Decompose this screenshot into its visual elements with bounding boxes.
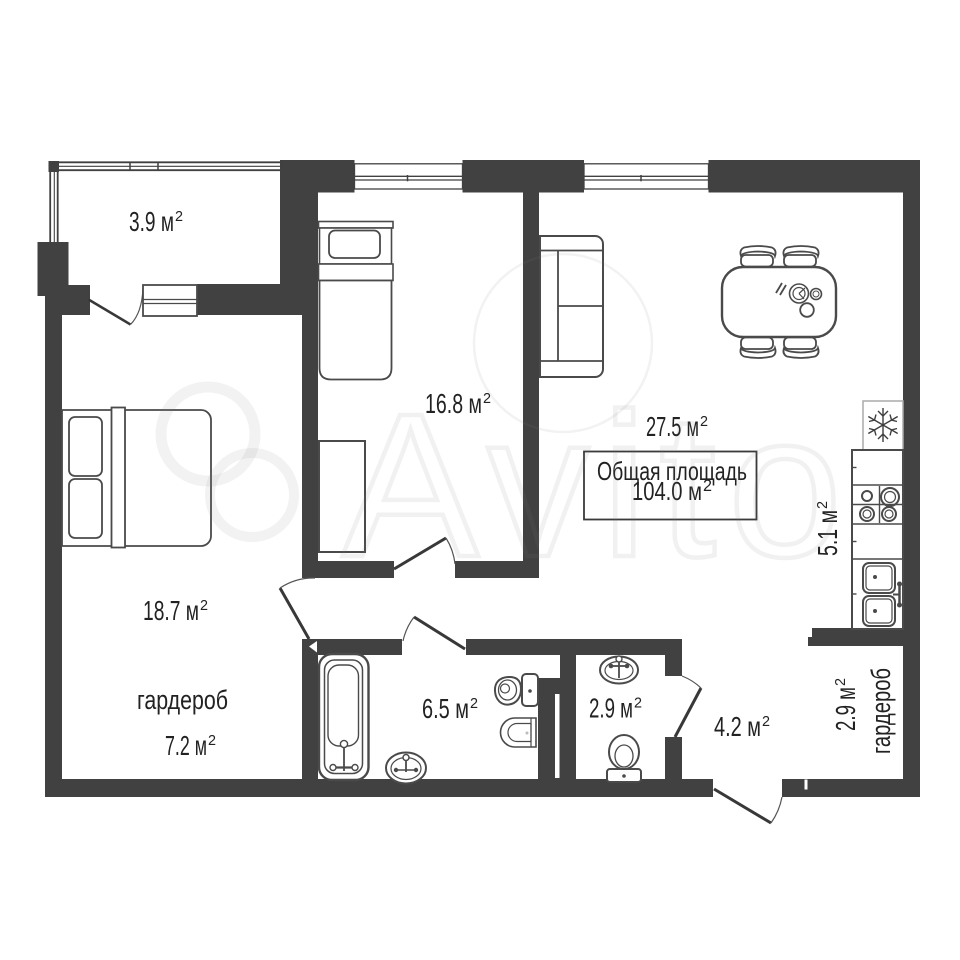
svg-text:2.9 м: 2.9 м [830,687,861,731]
svg-text:18.7 м: 18.7 м [143,595,199,626]
svg-text:2: 2 [200,597,208,614]
svg-text:2: 2 [832,678,849,686]
svg-text:2.9 м: 2.9 м [589,693,633,724]
svg-text:6.5 м: 6.5 м [422,693,469,724]
svg-text:4.2 м: 4.2 м [714,711,761,742]
svg-text:гардероб: гардероб [866,668,896,754]
svg-text:3.9 м: 3.9 м [129,206,174,237]
svg-text:гардероб: гардероб [137,685,228,715]
svg-text:2: 2 [762,713,770,730]
svg-text:2: 2 [634,695,642,712]
svg-text:2: 2 [175,208,183,225]
svg-text:7.2 м: 7.2 м [165,730,207,761]
svg-text:Avito: Avito [342,371,854,600]
svg-text:2: 2 [470,695,478,712]
svg-text:2: 2 [208,732,216,749]
